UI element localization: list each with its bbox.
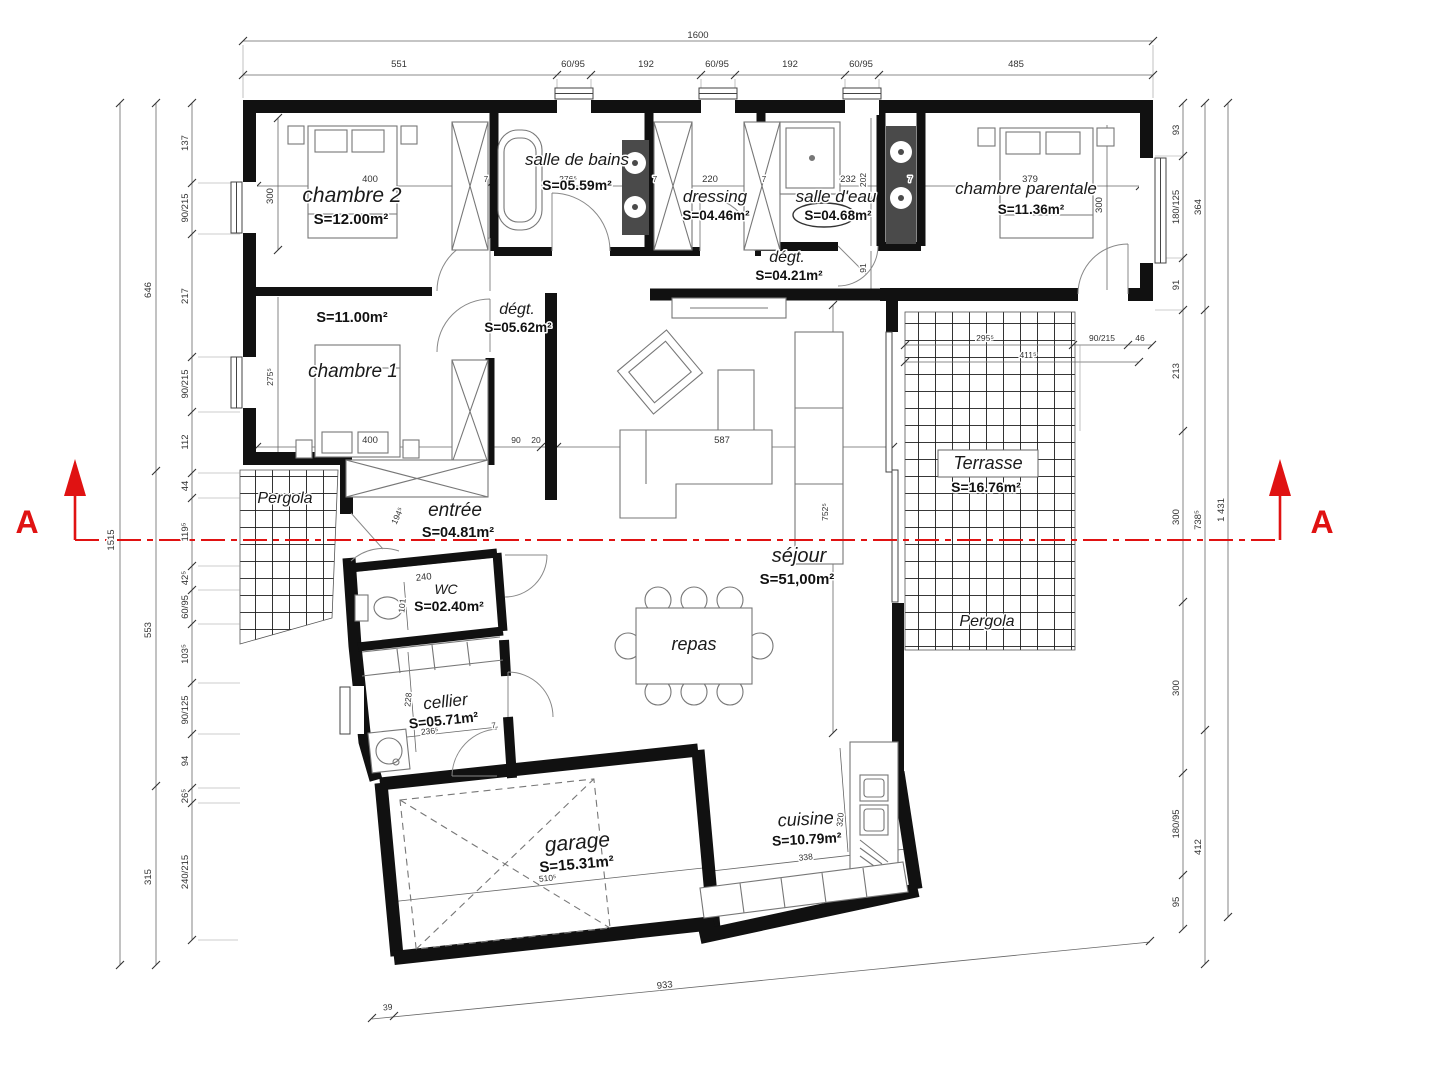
dim-room: 228	[402, 692, 413, 707]
dim-right-total: 1 431	[1216, 498, 1227, 522]
dim-room: 232	[840, 174, 856, 185]
dim-right: 300	[1171, 509, 1182, 525]
dim-right: 95	[1171, 897, 1182, 908]
room-area-sejour: S=51,00m²	[760, 571, 835, 588]
room-label-sejour: séjour	[772, 545, 828, 567]
dim-left: 94	[180, 756, 191, 767]
dim-left: 240/215	[180, 855, 191, 889]
dim-top: 60/95	[705, 59, 729, 70]
room-label-salle-de-bains: salle de bains	[525, 150, 629, 169]
dim-right: 213	[1171, 363, 1182, 379]
room-label-degt-1: dégt.	[769, 249, 805, 266]
dim-left: 137	[180, 135, 191, 151]
room-label-pergola-right: Pergola	[959, 613, 1014, 630]
dim-left: 44	[180, 481, 191, 492]
dim-room: 400	[362, 435, 378, 446]
dim-left: 217	[180, 288, 191, 304]
room-area-chambre-2: S=12.00m²	[314, 211, 389, 228]
dim-left: 42⁵	[180, 571, 191, 586]
room-area-chambre-1: S=11.00m²	[316, 310, 388, 326]
dim-left: 112	[180, 434, 191, 449]
room-label-dressing: dressing	[683, 187, 748, 206]
room-area-chambre-parentale: S=11.36m²	[998, 202, 1065, 217]
dim-left: 90/125	[180, 695, 191, 724]
room-label-garage: garage	[544, 828, 611, 857]
dim-room: 91	[858, 263, 868, 273]
dim-left: 90/215	[180, 369, 191, 398]
room-area-degt-2: S=05.62m²	[484, 320, 552, 335]
dim-room: 300	[1094, 197, 1105, 213]
dim-room: 194⁵	[389, 506, 406, 526]
room-label-terrasse: Terrasse	[953, 453, 1022, 473]
dim-room: 300	[265, 188, 276, 204]
dim-wall: 7	[762, 175, 767, 184]
section-label-a-left: A	[15, 504, 38, 540]
room-label-chambre-2: chambre 2	[302, 184, 402, 207]
room-area-cellier: S=05.71m²	[408, 708, 479, 731]
room-label-chambre-1: chambre 1	[308, 361, 398, 382]
room-area-salle-d-eau: S=04.68m²	[804, 208, 872, 223]
dim-bottom: 39	[382, 1002, 393, 1013]
dim-room: 752⁵	[820, 503, 830, 521]
dim-left: 119⁵	[180, 522, 191, 541]
dim-right: 738⁵	[1193, 510, 1204, 530]
dim-wall: 7	[491, 721, 497, 730]
dim-right: 412	[1193, 839, 1204, 855]
floor-plan-page: 160055160/9519260/9519260/95485151564655…	[0, 0, 1433, 1080]
room-label-wc: WC	[434, 581, 458, 597]
dim-room: 20	[531, 435, 541, 445]
dim-room: 202	[858, 173, 868, 187]
dim-terrace: 411⁵	[1019, 350, 1036, 360]
room-area-degt-1: S=04.21m²	[755, 268, 823, 283]
dim-right: 300	[1171, 680, 1182, 696]
section-arrow-right	[1269, 459, 1291, 496]
dim-room: 101	[396, 598, 407, 613]
dim-left: 26⁵	[180, 789, 191, 804]
living-room-furniture	[617, 298, 843, 564]
dim-left: 315	[143, 869, 154, 885]
dim-left: 646	[143, 282, 154, 298]
dim-wall: 7	[484, 175, 489, 184]
dim-right: 180/125	[1171, 190, 1182, 224]
room-area-wc: S=02.40m²	[414, 598, 484, 614]
dim-room: 320	[834, 812, 845, 827]
floor-plan-drawing: 160055160/9519260/9519260/95485151564655…	[0, 0, 1433, 1080]
dim-left: 103⁵	[180, 644, 191, 664]
dim-top: 60/95	[849, 59, 873, 70]
kitchen-counter	[700, 742, 908, 918]
section-label-a-right: A	[1310, 504, 1333, 540]
dim-terrace: 90/215	[1089, 333, 1115, 343]
dim-terrace: 46	[1135, 333, 1145, 343]
room-label-degt-2: dégt.	[499, 301, 535, 318]
room-label-entree: entrée	[428, 500, 482, 521]
dim-right: 91	[1171, 280, 1182, 291]
room-label-chambre-parentale: chambre parentale	[955, 179, 1097, 198]
dim-left-total: 1515	[106, 529, 117, 550]
room-area-salle-de-bains: S=05.59m²	[542, 177, 612, 193]
room-label-repas: repas	[671, 634, 716, 654]
dim-room: 338	[798, 851, 813, 862]
dim-room: 90	[511, 435, 521, 445]
dim-bottom: 933	[656, 979, 673, 992]
dim-top: 192	[638, 59, 654, 70]
room-label-salle-d-eau: salle d'eau	[796, 187, 877, 206]
dim-room: 220	[702, 174, 718, 185]
room-area-terrasse: S=16.76m²	[951, 479, 1021, 495]
dim-top: 60/95	[561, 59, 585, 70]
dim-top: 551	[391, 59, 407, 70]
dim-total-width: 1600	[687, 30, 708, 41]
dim-right: 93	[1171, 125, 1182, 136]
room-area-dressing: S=04.46m²	[682, 208, 750, 223]
room-area-entree: S=04.81m²	[422, 525, 494, 541]
dim-right: 364	[1193, 199, 1204, 215]
dim-room: 587	[714, 435, 730, 446]
dim-wall: 7	[908, 175, 913, 184]
dim-terrace: 295⁵	[976, 333, 994, 343]
section-arrow-left	[64, 459, 86, 496]
bathtub-icon	[498, 130, 542, 230]
room-label-cuisine: cuisine	[777, 808, 834, 831]
dim-wall: 7	[653, 175, 658, 184]
dim-room: 240	[415, 571, 432, 584]
dim-left: 553	[143, 622, 154, 638]
dim-top: 485	[1008, 59, 1024, 70]
dim-room: 275⁵	[265, 368, 275, 386]
dim-top: 192	[782, 59, 798, 70]
room-area-cuisine: S=10.79m²	[772, 829, 843, 849]
dim-left: 60/95	[180, 595, 191, 619]
shower-icon	[780, 122, 840, 194]
room-label-pergola-left: Pergola	[257, 490, 312, 507]
dim-right: 180/95	[1171, 809, 1182, 838]
dim-left: 90/215	[180, 193, 191, 222]
